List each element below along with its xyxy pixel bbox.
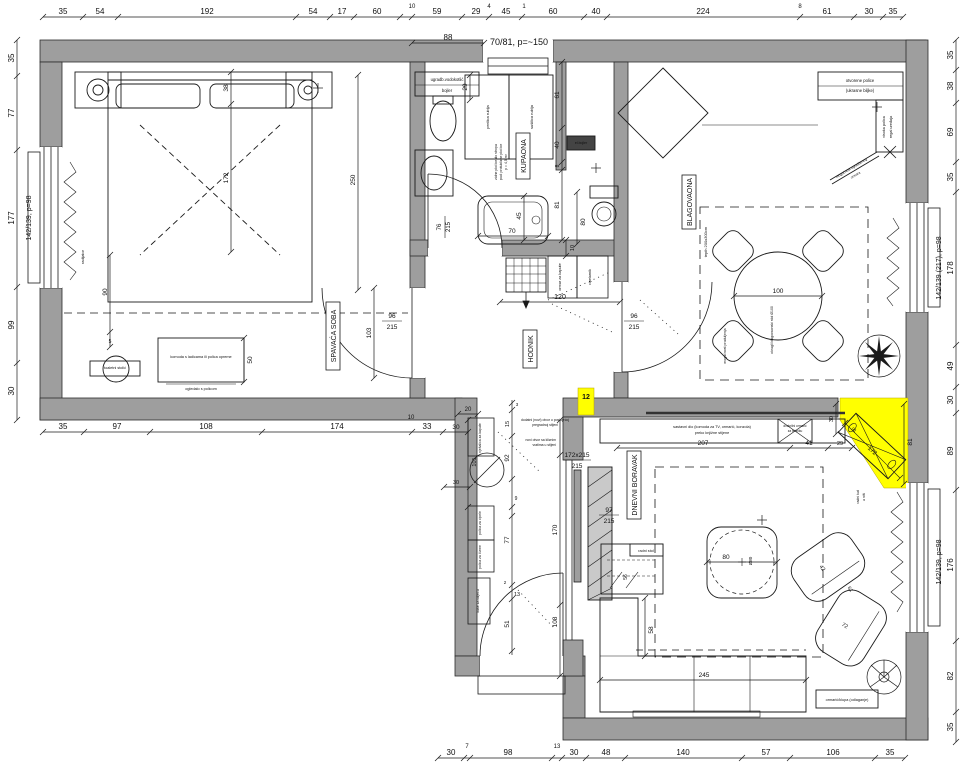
dim-label-dining-100: 100 bbox=[773, 288, 784, 295]
dim-label-hall-10: 10 bbox=[570, 245, 576, 251]
dim-label-bath-80: 80 bbox=[580, 218, 587, 226]
hallway-elements bbox=[506, 256, 678, 334]
note-tv-wall-1: sastavni dio (komoda za TV, ormarić, kon… bbox=[673, 425, 751, 429]
dim-label-right-main: 82 bbox=[946, 671, 955, 680]
note-shelves-2: (ukrasne biljke) bbox=[846, 88, 875, 93]
dim-label-right-main: 89 bbox=[946, 446, 955, 455]
dim-label-top-main: 224 bbox=[696, 7, 710, 16]
window-spec-left: 142/139, p=98 bbox=[26, 195, 33, 240]
dim-label-right-main: 49 bbox=[946, 361, 955, 370]
wall-right-lower bbox=[906, 632, 928, 740]
ventilation-shaft bbox=[506, 258, 546, 292]
dim-chain-bath-29: 29 bbox=[462, 72, 473, 103]
note-work-corner-2: u niši bbox=[862, 493, 866, 501]
armchair-dim: 42 bbox=[818, 564, 826, 572]
light-cross-dining bbox=[872, 102, 882, 112]
door-dim: 96 bbox=[388, 313, 396, 320]
living-plant bbox=[867, 660, 901, 694]
dim-label-living-245: 245 bbox=[699, 672, 710, 679]
dim-label-living-170-108: 108 bbox=[552, 616, 559, 627]
wall-hall-dining-lower bbox=[614, 372, 628, 398]
dim-label-top-main: 192 bbox=[200, 7, 214, 16]
dining-chair-ne bbox=[799, 227, 847, 275]
dim-label-corr-main: 77 bbox=[504, 536, 511, 544]
door-dim: 215 bbox=[446, 221, 452, 232]
note-shoe-cabinet: cipelarnik bbox=[588, 269, 592, 285]
dim-label-top-main: 40 bbox=[592, 7, 601, 16]
door-dim: 76 bbox=[437, 223, 443, 230]
dim-small-8: 8 bbox=[798, 4, 802, 10]
dim-label-bottom-main: 140 bbox=[676, 748, 690, 757]
opening-entrance-door bbox=[480, 656, 563, 676]
note-washer: perilica rublja bbox=[485, 104, 490, 128]
note-work-corner-1: radni kut bbox=[856, 490, 860, 503]
hall-coat-cabinet bbox=[548, 256, 577, 298]
nightstand-left bbox=[75, 72, 121, 108]
sightline-4 bbox=[518, 590, 554, 628]
dim-label-corr-main: 51 bbox=[504, 620, 511, 628]
note-double-cabinet-1: dvokrilni ormarić bbox=[783, 424, 807, 428]
door-dim: 215 bbox=[629, 324, 640, 331]
dim-label-corr-101: 101 bbox=[472, 457, 478, 466]
dim-label-bed-250: 250 bbox=[350, 174, 357, 185]
door-dim-sliding: 215 bbox=[572, 463, 583, 470]
dim-label-bed-90: 90 bbox=[102, 288, 109, 296]
walls bbox=[40, 40, 928, 740]
dim-label-top-main: 45 bbox=[502, 7, 511, 16]
dim-label-top-main: 35 bbox=[59, 7, 68, 16]
room-label-bedroom: SPAVAĆA SOBA bbox=[329, 309, 338, 362]
wall-wc-partition bbox=[556, 62, 566, 170]
dim-small-7: 7 bbox=[465, 744, 469, 750]
pillow-left bbox=[116, 84, 200, 108]
note-table-extend: mogućnost produljenja bbox=[723, 328, 727, 363]
note-sliding-1: novi otvor sa kliznim bbox=[525, 438, 556, 442]
dim-label-mid-left: 35 bbox=[59, 422, 68, 431]
dim-label-top-main: 59 bbox=[433, 7, 442, 16]
note-radiator: radijator bbox=[81, 249, 85, 263]
dim-label-mid-20: 20 bbox=[465, 407, 472, 413]
bathroom-door bbox=[428, 174, 502, 248]
room-label-bathroom: KUPAONA bbox=[521, 139, 528, 173]
dim-label-bed-50: 50 bbox=[247, 356, 254, 364]
wall-bedroom-bath-stub bbox=[410, 378, 425, 398]
note-dresser: komoda s ladicama ili polica opreme bbox=[170, 355, 231, 359]
dim-label-living-58: 58 bbox=[648, 626, 655, 634]
dim-label-bottom-main: 106 bbox=[826, 748, 840, 757]
dim-label-bath-45: 45 bbox=[516, 212, 523, 220]
note-desk: radni stol bbox=[638, 549, 654, 553]
armchair-1 bbox=[785, 526, 871, 607]
wall-step bbox=[563, 676, 585, 718]
dim-chain-living-245: 245 bbox=[597, 672, 809, 683]
note-new-opening-2: pregradnoj stijeni bbox=[532, 423, 558, 427]
light-cross-bedroom bbox=[313, 83, 323, 93]
sightline-2 bbox=[552, 304, 612, 332]
dim-small-4: 4 bbox=[487, 4, 491, 10]
entrance-door bbox=[480, 573, 563, 656]
dim-label-mid-left: 108 bbox=[199, 422, 213, 431]
dim-small-10: 10 bbox=[409, 4, 416, 10]
dim-label-corr-main: 15 bbox=[505, 421, 511, 427]
dim-small-2: 2 bbox=[504, 580, 507, 585]
dim-label-left-main: 177 bbox=[7, 211, 16, 225]
room-label-living: DNEVNI BORAVAK bbox=[632, 454, 639, 516]
dim-label-right-main: 69 bbox=[946, 127, 955, 136]
dim-chain-bed-250: 250 bbox=[350, 72, 361, 293]
door-dim: 97 bbox=[605, 507, 613, 514]
dim-label-right-main: 38 bbox=[946, 81, 955, 90]
room-label-boxes bbox=[326, 133, 696, 519]
dim-small-5: 5 bbox=[109, 339, 112, 345]
dim-label-bed-38-172: 38 bbox=[223, 84, 230, 92]
note-new-opening-1: dodatni (novi) otvor u postojećoj bbox=[521, 418, 569, 422]
dim-small-13: 13 bbox=[554, 744, 561, 750]
wall-right-mid bbox=[906, 312, 928, 483]
dim-label-bottom-main: 30 bbox=[447, 748, 456, 757]
dim-label-top-main: 54 bbox=[96, 7, 105, 16]
note-shoe-shelf: polica za cipele bbox=[478, 511, 482, 535]
wall-top-right bbox=[553, 40, 926, 62]
door-dim: 215 bbox=[604, 518, 615, 525]
dim-label-top-main: 60 bbox=[373, 7, 382, 16]
dresser bbox=[158, 338, 244, 382]
dim-label-left-main: 30 bbox=[7, 386, 16, 395]
dim-label-living-top: 29 bbox=[837, 441, 843, 447]
wall-living-bottom bbox=[563, 718, 928, 740]
windows bbox=[28, 58, 940, 694]
note-bench: ormarić/klupa (odlaganje) bbox=[826, 698, 870, 702]
dim-label-mid-left: 97 bbox=[113, 422, 122, 431]
dim-chain-living-top: 2074129 bbox=[614, 440, 855, 451]
note-tall-shelf-2: regal uređaja bbox=[889, 115, 893, 138]
wardrobe-hatched bbox=[588, 467, 612, 600]
door-dim: 215 bbox=[387, 324, 398, 331]
dim-label-bath-stack: 61 bbox=[554, 91, 561, 99]
dim-label-bottom-main: 57 bbox=[762, 748, 771, 757]
sightline-3 bbox=[640, 300, 678, 334]
note-hooks: kuke za odjeću bbox=[476, 589, 480, 612]
dim-label-yellow-30: 30 bbox=[829, 416, 835, 422]
note-coat-rack: vješalica za kapute bbox=[478, 423, 482, 453]
dining-plant bbox=[858, 335, 900, 377]
dim-chain-bath-80: 80 bbox=[574, 189, 587, 247]
note-el-boiler: el.bojler bbox=[575, 141, 588, 145]
radiator-living bbox=[891, 492, 903, 612]
note-bath-3: p ≈ 4,5 m² bbox=[504, 153, 508, 170]
dim-label-corr-30: 30 bbox=[453, 480, 459, 486]
dimension-layer: 3554192541760592945604022461303588357717… bbox=[7, 7, 959, 761]
dim-label-mid-left: 30 bbox=[452, 424, 460, 431]
hall-shoe-cabinet bbox=[577, 256, 608, 298]
dim-label-right-main: 178 bbox=[946, 261, 955, 275]
dim-small-3: 3 bbox=[516, 402, 519, 407]
wall-living-corridor-lower bbox=[563, 640, 583, 676]
dim-label-top-main: 60 bbox=[549, 7, 558, 16]
dim-label-right-main: 176 bbox=[946, 558, 955, 572]
dim-label-bed-38-172: 172 bbox=[223, 172, 230, 183]
dim-label-left-main: 77 bbox=[7, 108, 16, 117]
wc-bowl bbox=[592, 202, 616, 226]
dim-label-corr-main: 92 bbox=[504, 454, 511, 462]
wall-bedroom-bottom bbox=[40, 398, 462, 420]
dim-label-top-main: 30 bbox=[865, 7, 874, 16]
window-spec-entry: 70/81, p=~150 bbox=[490, 37, 548, 47]
wall-corridor-bottom-left bbox=[455, 656, 480, 676]
dim-label-right-main: 35 bbox=[946, 722, 955, 731]
wall-hall-dining-upper bbox=[614, 62, 628, 282]
radiator-dining bbox=[887, 218, 899, 306]
dim-chain-top-main: 35541925417605929456040224613035 bbox=[40, 7, 906, 20]
entrance-step bbox=[478, 676, 565, 694]
dim-chain-right-main: 353869351784930891768235 bbox=[946, 37, 959, 745]
note-dining-table: okrugli blagovaonski stol Ø100 bbox=[770, 306, 774, 354]
dim-label-bath-stack: 81 bbox=[554, 201, 561, 209]
dining-chair-sw bbox=[709, 317, 757, 365]
light-cross-living bbox=[757, 515, 767, 525]
radiator-left bbox=[64, 162, 76, 280]
note-mirror: ogledalo s policom bbox=[185, 387, 216, 391]
note-sliding-2: vratima u stijeni bbox=[532, 443, 556, 447]
bathtub bbox=[478, 196, 548, 244]
wall-corridor-left bbox=[455, 398, 477, 656]
dim-label-left-main: 99 bbox=[7, 320, 16, 329]
note-double-cabinet-2: za tehniku bbox=[788, 429, 803, 433]
bed bbox=[108, 72, 312, 302]
dim-label-bottom-main: 30 bbox=[570, 748, 579, 757]
dim-label-right-main: 35 bbox=[946, 172, 955, 181]
wall-right-upper bbox=[906, 40, 928, 203]
dim-label-living-top: 207 bbox=[698, 440, 709, 447]
dim-label-yellow-81: 81 bbox=[907, 438, 914, 446]
decor-diamond bbox=[618, 68, 708, 158]
dim-small-9: 9 bbox=[515, 496, 518, 502]
wall-left-upper bbox=[40, 62, 62, 147]
dim-chain-left-main: 35771779930 bbox=[7, 37, 20, 423]
dim-chain-bath-70: 70 bbox=[475, 228, 551, 239]
note-boiler: bojler bbox=[442, 88, 453, 93]
note-vanity: toaletni stolić bbox=[104, 366, 126, 370]
note-carpet: tepih 200x300cm bbox=[703, 226, 708, 257]
note-cistern: ugradb.vodokotlić bbox=[431, 77, 464, 82]
table-diameter: Ø80 bbox=[748, 556, 753, 565]
window-spec-right-bottom: 142/139, p=98 bbox=[936, 539, 943, 584]
nightstand-right bbox=[286, 72, 332, 108]
dim-label-mid-left: 33 bbox=[423, 422, 432, 431]
note-boot-shelf: polica za čizme bbox=[478, 545, 482, 569]
dim-chain-dining-100: 100 bbox=[731, 288, 825, 299]
floor-plan-page: 3554192541760592945604022461303588357717… bbox=[0, 0, 973, 769]
dim-chain-mid-left: 35971081743330 bbox=[40, 422, 471, 435]
dim-chain-bottom-main: 309830481405710635 bbox=[435, 748, 908, 761]
dim-chain-bath-45: 45 bbox=[516, 193, 527, 243]
note-coat-cabinet: ormar za kapute bbox=[558, 263, 562, 290]
dim-label-bath-stack: 8 bbox=[555, 164, 561, 167]
dining-chair-se bbox=[799, 317, 847, 365]
dim-label-hall-120: 120 bbox=[554, 294, 566, 301]
dim-chain-living-58: 58 bbox=[642, 595, 655, 659]
toilet-bowl bbox=[430, 101, 456, 141]
dim-label-bath-stack: 40 bbox=[554, 141, 561, 149]
dining-furniture bbox=[618, 68, 903, 380]
dim-chain-bed-50: 50 bbox=[241, 335, 254, 385]
armchair-dim: 72 bbox=[840, 622, 848, 630]
opening-bath-door bbox=[428, 240, 502, 256]
dim-label-bottom-main: 48 bbox=[602, 748, 611, 757]
door-dim: 96 bbox=[630, 313, 638, 320]
dim-label-top-main: 61 bbox=[823, 7, 832, 16]
text-layer: 1041870/81, p=~15010713142/139, p=98142/… bbox=[26, 4, 943, 750]
dim-label-right-main: 30 bbox=[946, 395, 955, 404]
dining-chair-nw bbox=[709, 227, 757, 275]
armchair-dim: 61 bbox=[846, 585, 854, 593]
dim-label-top-main: 17 bbox=[338, 7, 347, 16]
dim-label-left-main: 35 bbox=[7, 53, 16, 62]
dim-small-1: 1 bbox=[522, 4, 526, 10]
dim-label-top-main: 35 bbox=[889, 7, 898, 16]
dim-label-mid-left: 174 bbox=[330, 422, 344, 431]
dim-label-bottom-main: 35 bbox=[886, 748, 895, 757]
builtin-diagonal-2 bbox=[832, 156, 879, 184]
dim-label-bath-70: 70 bbox=[508, 228, 516, 235]
highlight-marker-12 bbox=[578, 388, 594, 415]
dim-small-10b: 10 bbox=[408, 415, 415, 421]
dim-label-top-88: 88 bbox=[444, 33, 453, 42]
dim-label-bottom-main: 98 bbox=[504, 748, 513, 757]
dim-label-living-170-108: 170 bbox=[552, 524, 559, 535]
door-dim-sliding: 172x215 bbox=[565, 452, 590, 459]
window-spec-right-top: 142/139 (217), p=98 bbox=[936, 236, 943, 299]
note-bath-1: zidne pločice do stropa bbox=[494, 144, 498, 180]
wall-bath-bottom-left bbox=[410, 240, 428, 256]
light-cross-wc bbox=[591, 163, 601, 173]
armchair-2 bbox=[810, 584, 893, 672]
dim-label-top-main: 54 bbox=[309, 7, 318, 16]
sliding-door bbox=[566, 460, 581, 640]
note-shelves-1: otvorene police bbox=[846, 78, 875, 83]
desk-dim: 56 bbox=[623, 574, 629, 580]
marker-12: 12 bbox=[582, 394, 590, 401]
note-tall-shelf-1: visoka polica bbox=[882, 115, 886, 138]
room-label-hallway: HODNIK bbox=[528, 335, 535, 363]
opening-dining-door bbox=[614, 282, 628, 372]
dim-small-13b: 13 bbox=[514, 592, 520, 598]
dim-chain-hall-120: 120 bbox=[497, 294, 623, 305]
note-tv-wall-2: preko knjižne stijene bbox=[695, 431, 729, 435]
note-bath-2: pod: protuklizne pločice bbox=[499, 144, 503, 181]
corner-sofa bbox=[600, 598, 806, 712]
lamp-right bbox=[298, 80, 318, 100]
bedroom-furniture bbox=[64, 72, 408, 384]
dim-label-right-main: 35 bbox=[946, 50, 955, 59]
dim-label-top-main: 29 bbox=[472, 7, 481, 16]
dim-label-bath-29: 29 bbox=[462, 83, 469, 91]
dim-label-living-80: 80 bbox=[722, 554, 730, 561]
sliding-door-panel bbox=[574, 470, 581, 582]
dim-chain-bed-90: 90 bbox=[102, 252, 113, 350]
room-label-dining: BLAGOVAONA bbox=[687, 178, 694, 226]
dim-chain-bed-38-172: 38172 bbox=[223, 69, 234, 255]
dim-chain-living-170-108: 170108 bbox=[552, 417, 563, 679]
note-dryer: sušilica rublja bbox=[529, 104, 534, 129]
dim-label-living-top: 41 bbox=[805, 440, 813, 447]
dim-label-bed-103: 103 bbox=[366, 327, 373, 338]
floor-plan-drawing: 3554192541760592945604022461303588357717… bbox=[0, 0, 973, 769]
dim-chain-corr-main: 15927751 bbox=[504, 400, 515, 655]
lamp-left bbox=[87, 79, 109, 101]
